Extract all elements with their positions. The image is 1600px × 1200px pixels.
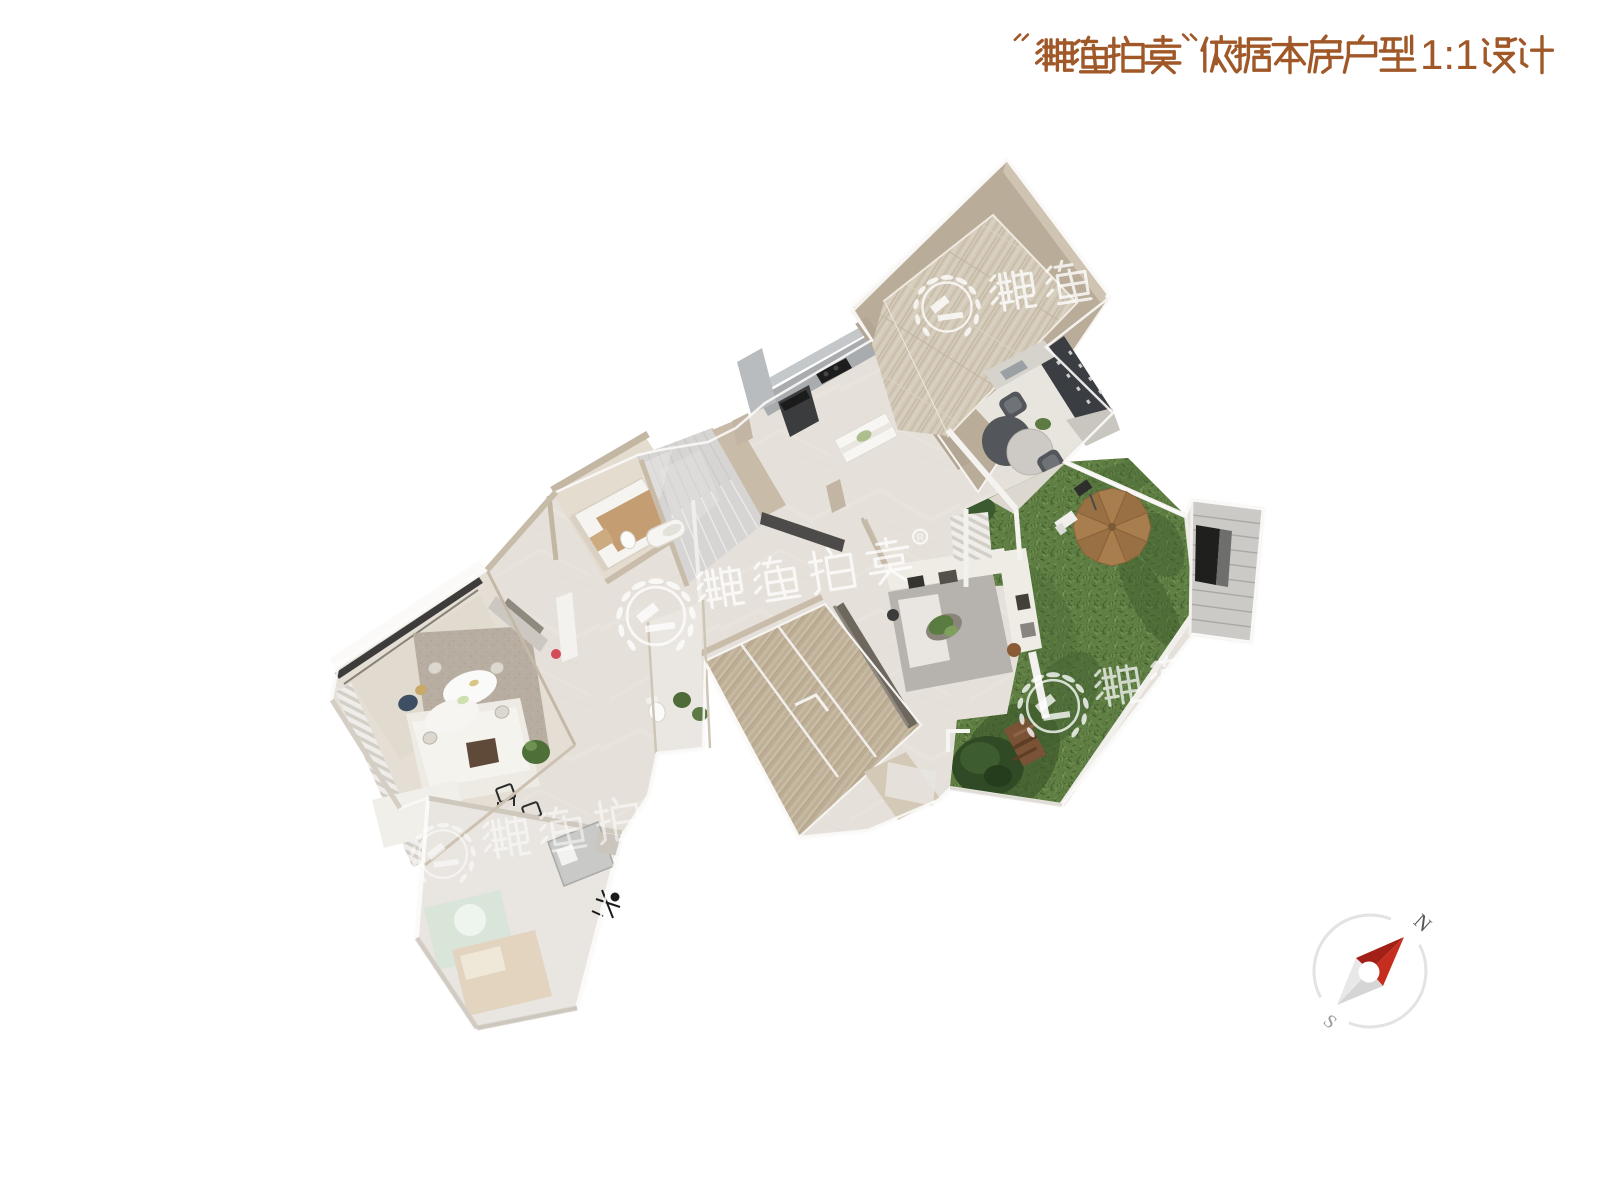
svg-text:1:1: 1:1 <box>1420 31 1478 78</box>
